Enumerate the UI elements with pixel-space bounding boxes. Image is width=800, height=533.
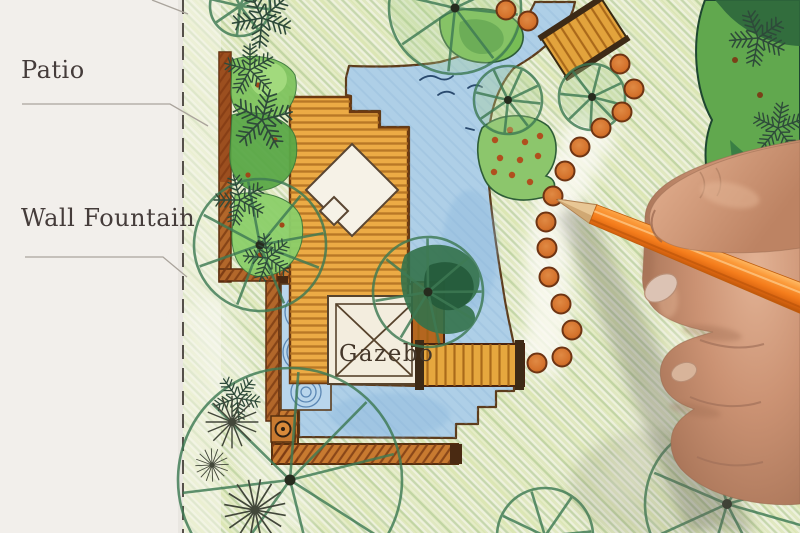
gazebo — [328, 296, 420, 384]
plan-drawing — [0, 0, 800, 533]
wall-fountain-label: Wall Fountain — [21, 206, 195, 230]
post-symbol — [271, 416, 295, 442]
gazebo-label: Gazebo — [339, 343, 434, 366]
wall-fountain-leader-line — [25, 257, 187, 277]
photo-of-landscape-plan: Patio Wall Fountain Gazebo — [0, 0, 800, 533]
patio-label: Patio — [21, 58, 85, 82]
